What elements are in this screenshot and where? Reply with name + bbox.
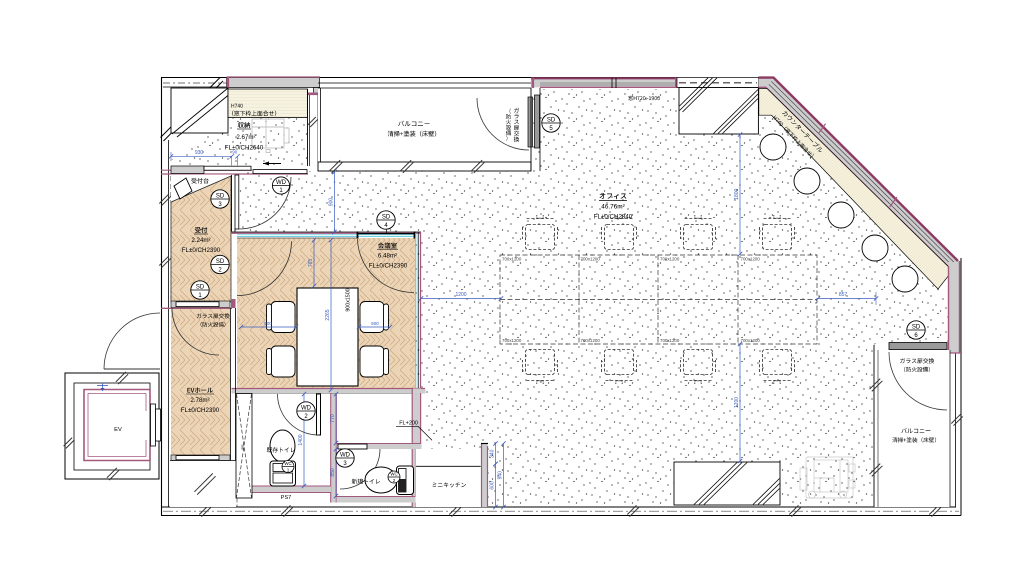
svg-text:700x1200: 700x1200: [741, 257, 761, 262]
svg-text:700x1200: 700x1200: [502, 257, 522, 262]
svg-text:SD: SD: [196, 284, 205, 290]
svg-text:FL±0/CH2390: FL±0/CH2390: [181, 407, 220, 414]
svg-text:1400: 1400: [298, 434, 304, 445]
svg-text:FL±0/CH2840: FL±0/CH2840: [594, 214, 633, 221]
svg-text:765: 765: [308, 259, 314, 268]
svg-text:WC: WC: [284, 461, 291, 466]
svg-text:46.76m²: 46.76m²: [601, 204, 624, 211]
svg-text:700x1200: 700x1200: [581, 257, 601, 262]
svg-text:2265: 2265: [325, 309, 331, 320]
svg-text:FL±0/CH2390: FL±0/CH2390: [369, 263, 408, 270]
svg-text:WD: WD: [340, 452, 351, 458]
svg-text:340: 340: [490, 449, 496, 458]
svg-text:SD: SD: [912, 324, 921, 330]
svg-text:2.67m²: 2.67m²: [236, 134, 255, 141]
svg-text:900: 900: [264, 321, 272, 326]
svg-text:2: 2: [393, 478, 396, 483]
svg-text:WC: WC: [390, 472, 397, 477]
svg-text:600: 600: [490, 481, 496, 490]
svg-text:6.48m²: 6.48m²: [378, 253, 397, 260]
svg-text:900: 900: [329, 198, 335, 207]
svg-text:SD: SD: [216, 259, 225, 265]
svg-text:EV: EV: [114, 427, 122, 433]
svg-text:PS: PS: [240, 444, 245, 450]
svg-text:FL+200: FL+200: [399, 421, 418, 427]
svg-text:700x1200: 700x1200: [741, 338, 761, 343]
svg-text:700x1200: 700x1200: [502, 338, 522, 343]
svg-text:SD: SD: [382, 214, 391, 220]
svg-text:FL±0/CH2640: FL±0/CH2640: [225, 145, 264, 152]
svg-text:PS7: PS7: [281, 495, 291, 501]
svg-text:1200: 1200: [734, 397, 740, 408]
svg-text:2.24m²: 2.24m²: [191, 237, 210, 244]
svg-text:850: 850: [330, 468, 336, 477]
svg-text:WD: WD: [276, 180, 287, 186]
svg-text:1: 1: [287, 468, 290, 473]
svg-text:700x1200: 700x1200: [581, 338, 601, 343]
svg-text:90: 90: [232, 150, 238, 155]
svg-text:1200: 1200: [455, 292, 466, 298]
svg-text:940: 940: [498, 471, 504, 480]
svg-text:SD: SD: [216, 193, 225, 199]
svg-text:900x1500: 900x1500: [346, 288, 352, 311]
svg-text:2.78m²: 2.78m²: [190, 397, 209, 404]
svg-text:857: 857: [839, 292, 848, 298]
svg-text:FL±0/CH2390: FL±0/CH2390: [182, 247, 221, 254]
svg-text:700x1200: 700x1200: [660, 257, 680, 262]
svg-text:770: 770: [330, 414, 336, 423]
svg-text:1800: 1800: [734, 188, 740, 199]
svg-text:930: 930: [195, 150, 204, 156]
svg-text:WD: WD: [301, 405, 312, 411]
svg-text:SD: SD: [547, 117, 556, 123]
svg-text:700x1200: 700x1200: [660, 338, 680, 343]
svg-text:900: 900: [371, 321, 379, 326]
